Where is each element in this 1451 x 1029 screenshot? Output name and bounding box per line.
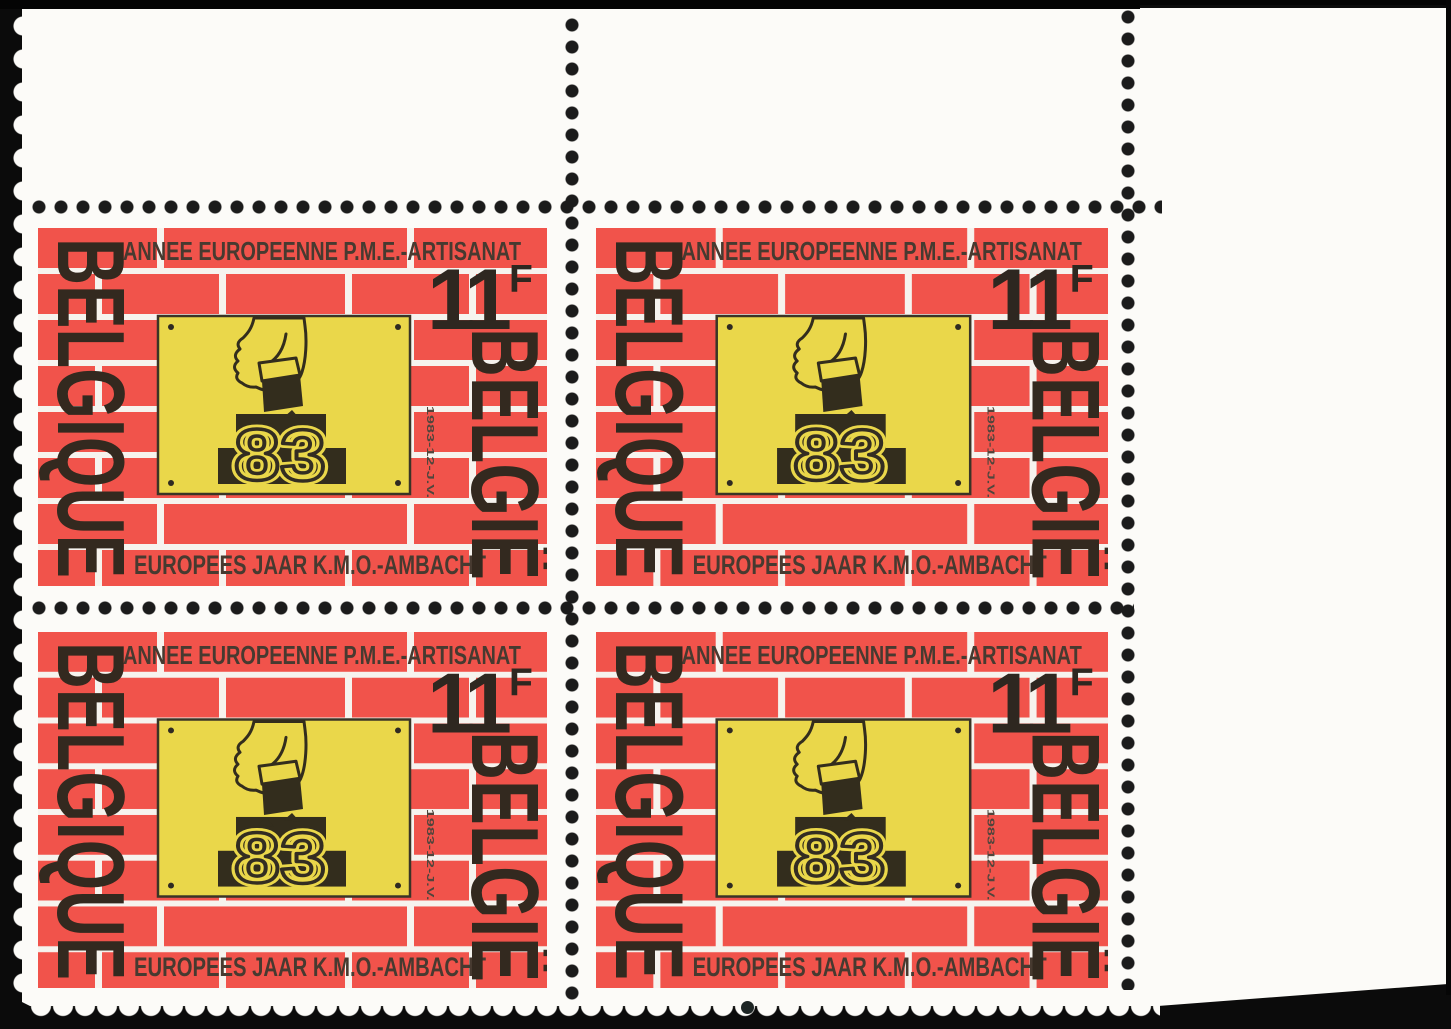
plaque-screw-icon (395, 727, 401, 733)
plaque-screw-icon (395, 883, 401, 889)
plaque-screw-icon (955, 883, 961, 889)
country-name-dutch: BELGIË (1011, 731, 1108, 982)
plaque-screw-icon (168, 480, 174, 486)
perforation-row-middle (28, 601, 1134, 615)
plaque-screw-icon (168, 883, 174, 889)
plaque-screw-icon (727, 324, 733, 330)
held-brick (262, 375, 303, 412)
year-plaque: 83 83 (158, 720, 410, 899)
year-plaque: 83 83 (158, 316, 410, 496)
country-name-dutch: BELGIË (1011, 328, 1108, 580)
scan-edge-top-left (0, 0, 1140, 9)
stamp: ANNEE EUROPEENNE P.M.E.-ARTISANAT EUROPE… (38, 228, 547, 586)
bottom-inscription-dutch: EUROPEES JAAR K.M.O.-AMBACHT (693, 549, 1047, 580)
denomination-unit: F (1070, 662, 1094, 705)
held-brick (821, 778, 862, 815)
perforation-row-top (28, 200, 1162, 214)
perforation-teeth-left-edge (8, 10, 23, 1000)
plaque-screw-icon (955, 480, 961, 486)
denomination-unit: F (509, 258, 533, 301)
plaque-screw-icon (727, 480, 733, 486)
year-plaque: 83 83 (717, 316, 970, 496)
perforation-teeth-bottom-edge (30, 1003, 1160, 1018)
country-name-french: BELGIQUE (596, 238, 702, 578)
bottom-inscription-dutch: EUROPEES JAAR K.M.O.-AMBACHT (693, 952, 1047, 982)
year-digits-outline: 83 (234, 819, 326, 899)
year-plaque: 83 83 (717, 720, 970, 899)
plaque-screw-icon (395, 324, 401, 330)
year-digits-outline: 83 (793, 416, 886, 496)
plaque-screw-icon (727, 883, 733, 889)
perforation-column-center (565, 14, 579, 1006)
printing-date-inscription: 1983-12-J.V. (424, 809, 435, 901)
bottom-inscription-dutch: EUROPEES JAAR K.M.O.-AMBACHT (134, 550, 486, 580)
year-digits-outline: 83 (234, 416, 326, 496)
year-digits-outline: 83 (793, 819, 886, 899)
printing-date-inscription: 1983-12-J.V. (424, 406, 435, 498)
perforation-column-right (1121, 6, 1135, 990)
stamp-top-left: ANNEE EUROPEENNE P.M.E.-ARTISANAT EUROPE… (38, 228, 547, 586)
scan-edge-right (1446, 0, 1451, 995)
country-name-french: BELGIQUE (38, 642, 144, 980)
plaque-screw-icon (955, 324, 961, 330)
denomination-unit: F (1070, 258, 1094, 301)
stamp-bottom-left: ANNEE EUROPEENNE P.M.E.-ARTISANAT EUROPE… (38, 632, 547, 988)
held-brick (262, 778, 303, 815)
country-name-dutch: BELGIË (451, 328, 547, 580)
plaque-screw-icon (168, 727, 174, 733)
bottom-inscription-dutch: EUROPEES JAAR K.M.O.-AMBACHT (134, 952, 486, 982)
plaque-screw-icon (727, 727, 733, 733)
country-name-french: BELGIQUE (596, 642, 703, 980)
stamp: ANNEE EUROPEENNE P.M.E.-ARTISANAT EUROPE… (596, 228, 1108, 586)
held-brick (821, 375, 862, 412)
stamp-bottom-right: ANNEE EUROPEENNE P.M.E.-ARTISANAT EUROPE… (596, 632, 1108, 988)
stamp: ANNEE EUROPEENNE P.M.E.-ARTISANAT EUROPE… (38, 632, 547, 988)
stamp-top-right: ANNEE EUROPEENNE P.M.E.-ARTISANAT EUROPE… (596, 228, 1108, 586)
country-name-french: BELGIQUE (38, 238, 144, 578)
denomination-unit: F (509, 662, 533, 705)
perforation-hole (741, 1001, 754, 1014)
country-name-dutch: BELGIË (451, 731, 547, 982)
scan-background: ANNEE EUROPEENNE P.M.E.-ARTISANAT EUROPE… (0, 0, 1451, 1029)
printing-date-inscription: 1983-12-J.V. (984, 406, 995, 498)
printing-date-inscription: 1983-12-J.V. (984, 809, 995, 901)
stamp: ANNEE EUROPEENNE P.M.E.-ARTISANAT EUROPE… (596, 632, 1108, 988)
plaque-screw-icon (168, 324, 174, 330)
plaque-screw-icon (955, 727, 961, 733)
plaque-screw-icon (395, 480, 401, 486)
scan-edge-top-right (1140, 0, 1451, 5)
